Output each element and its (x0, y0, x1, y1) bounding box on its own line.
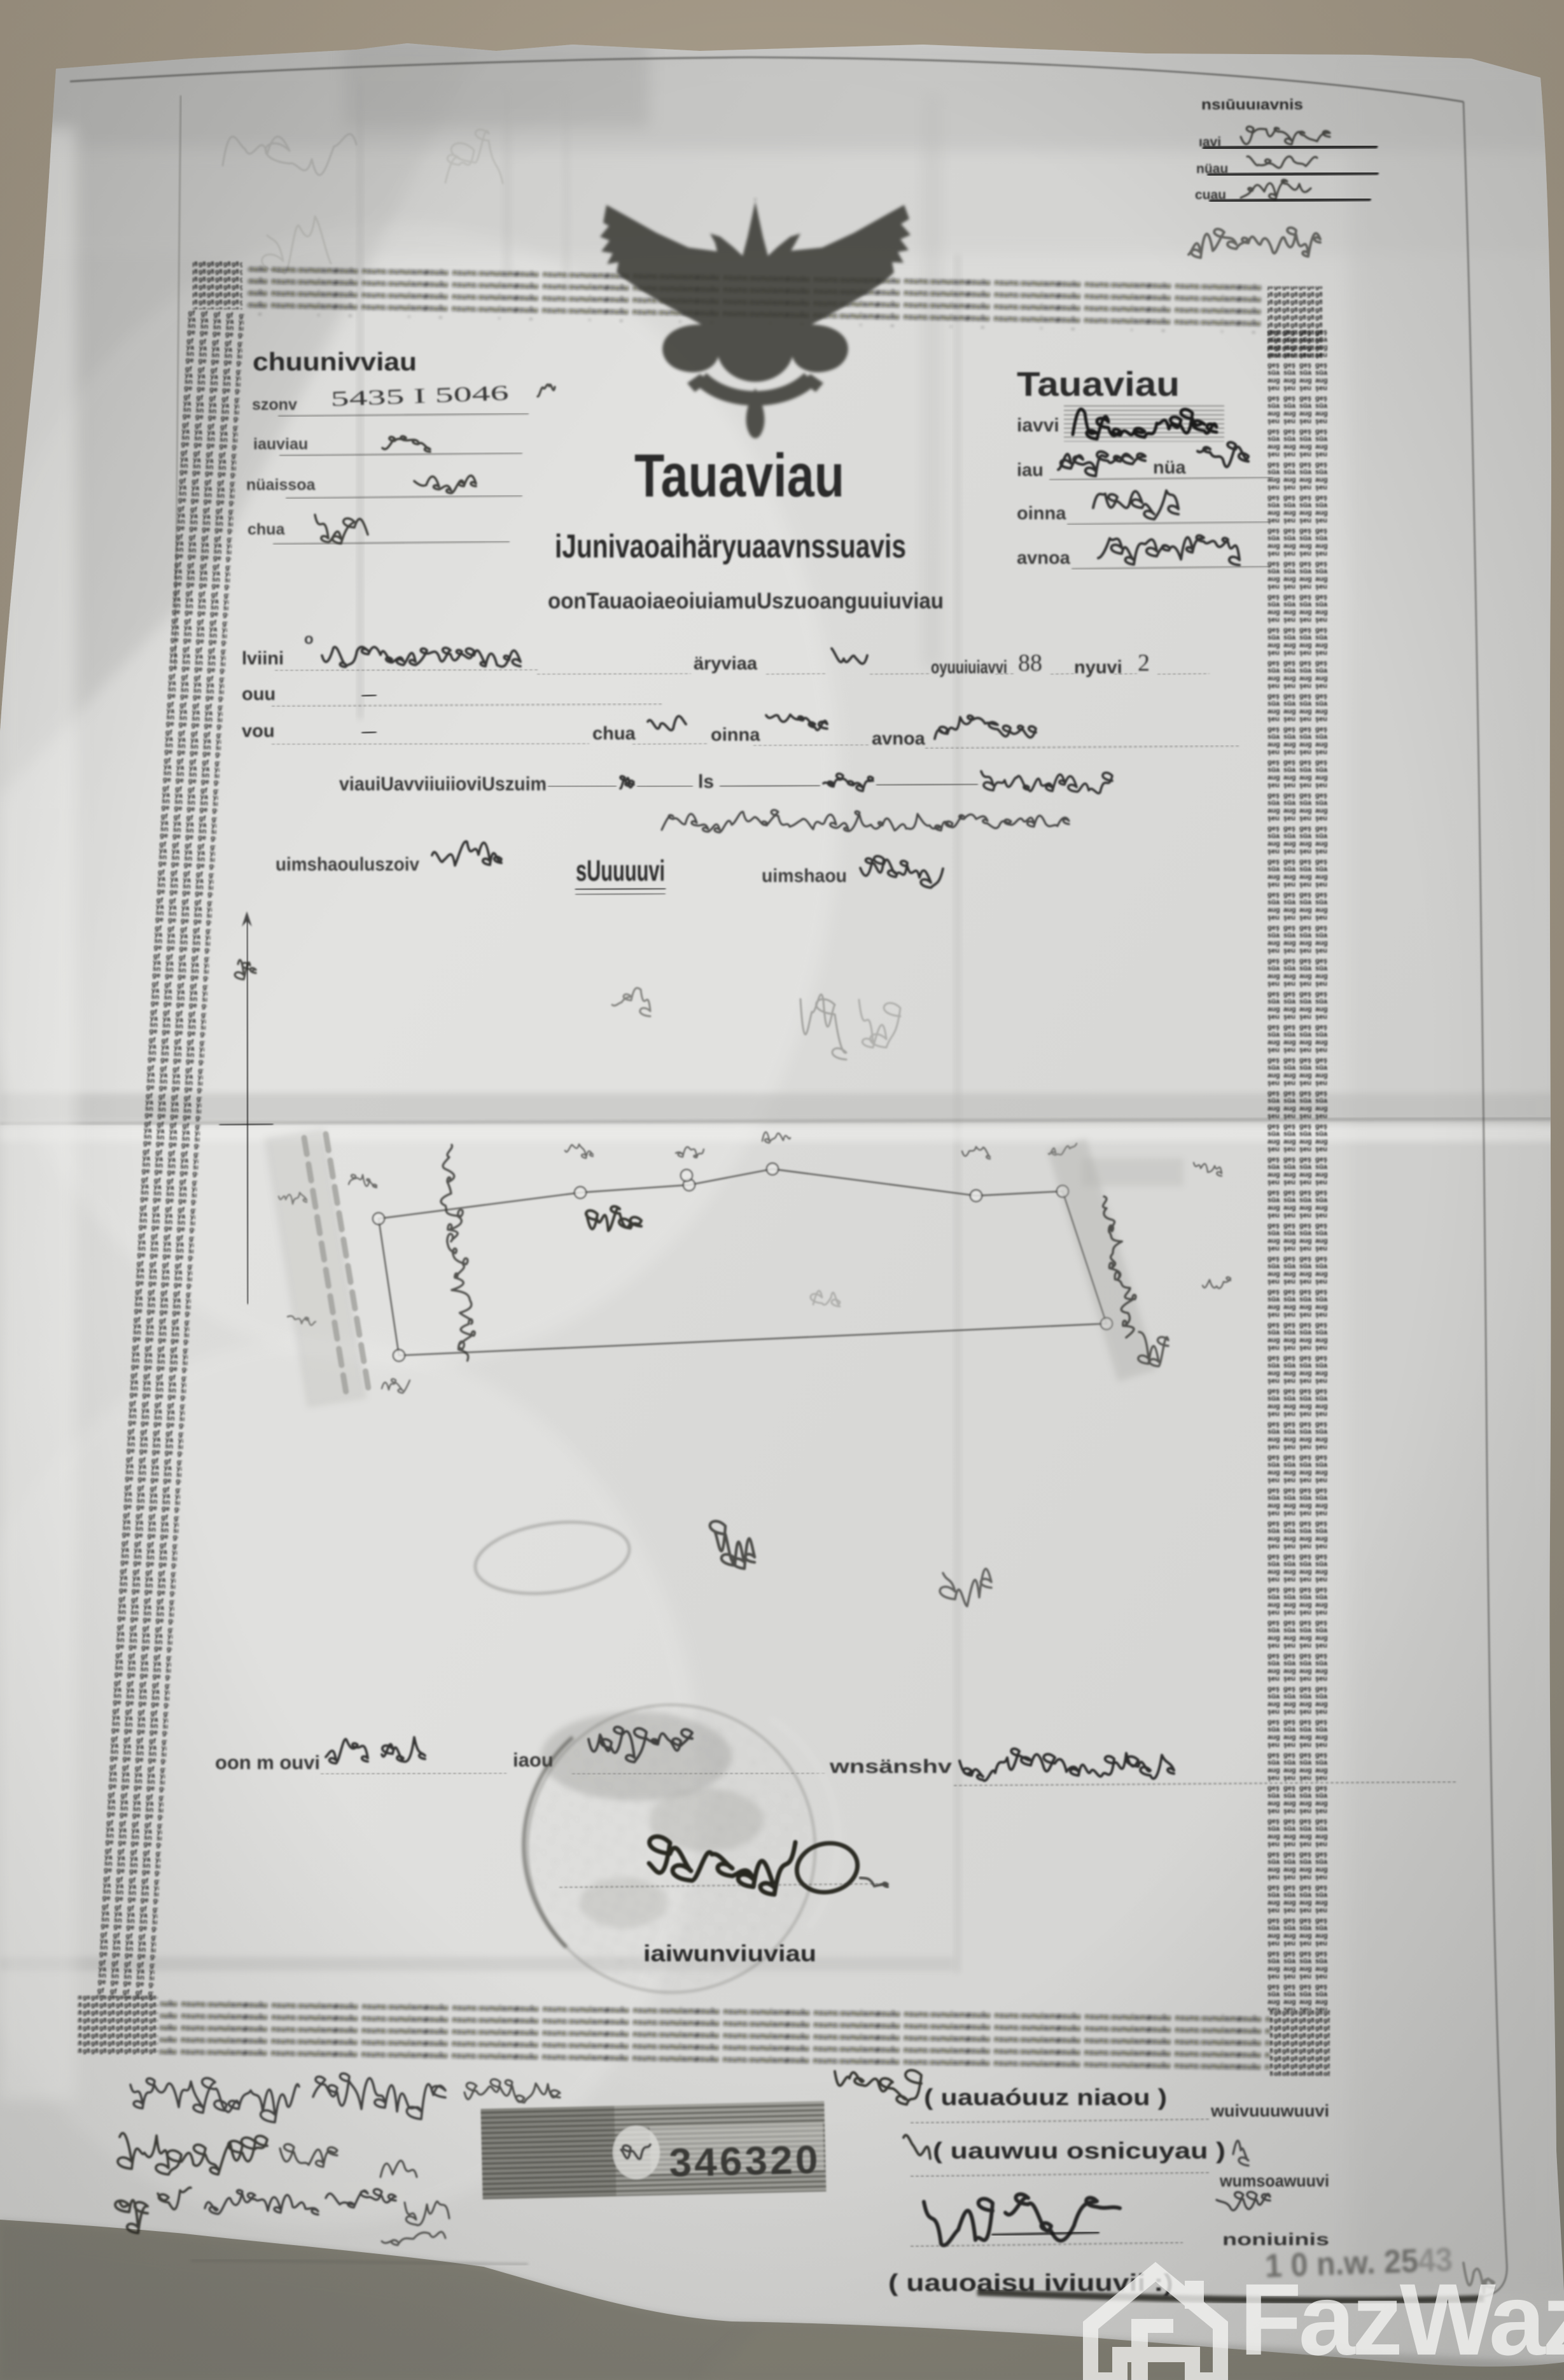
svg-text:FazWaz: FazWaz (1239, 2262, 1564, 2376)
